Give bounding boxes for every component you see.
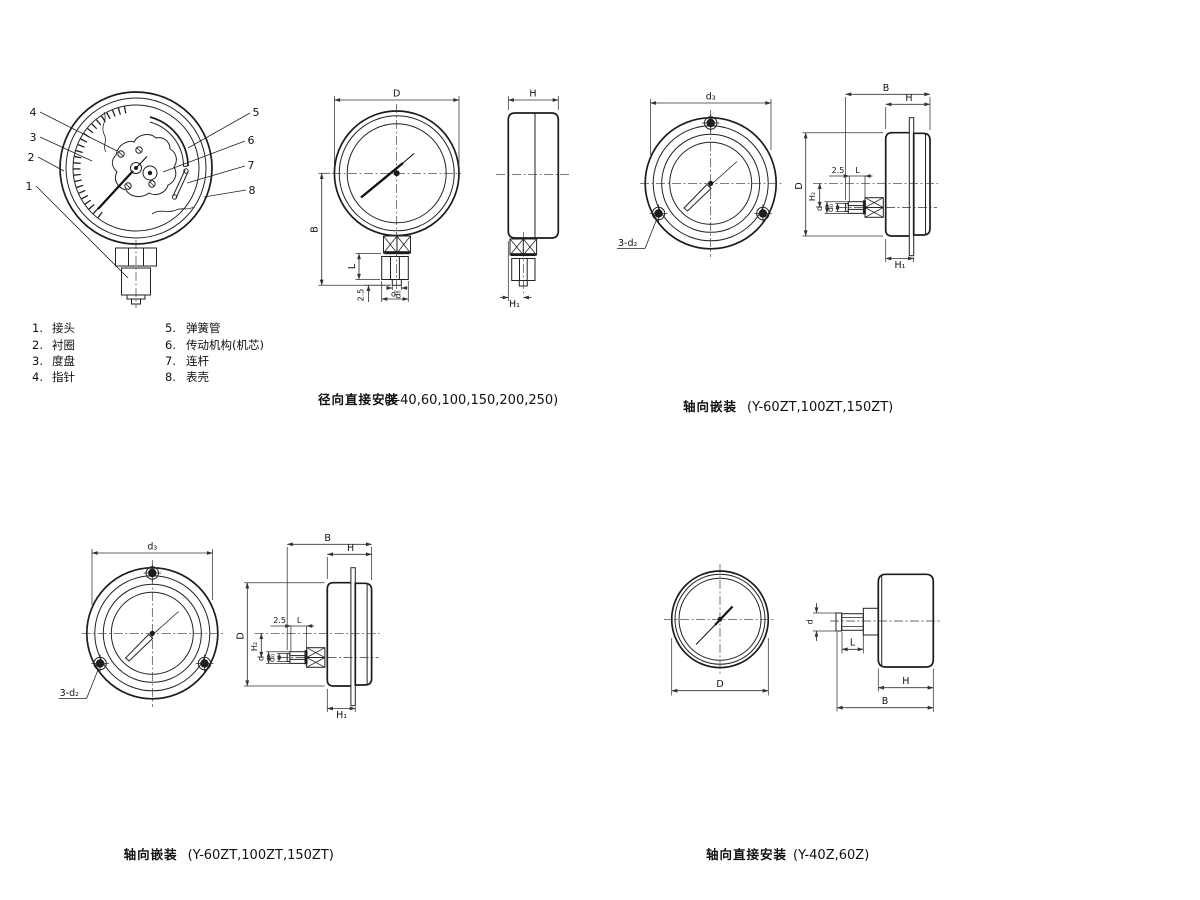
dim-label-H: H [905, 93, 912, 104]
legend-item-label: 弹簧管 [186, 321, 221, 335]
pointer-needle [715, 607, 733, 626]
dim-label-H1: H₁ [336, 710, 347, 721]
gasket [511, 253, 536, 256]
case-side-profile [327, 583, 351, 686]
callout-5: 5 [253, 106, 260, 119]
radial-direct-mount-figure: D B L 2.5 d₀ d [309, 89, 570, 409]
dim-label-2.5: 2.5 [273, 616, 286, 625]
bezel-profile [914, 133, 930, 235]
dim-label-L: L [347, 263, 358, 269]
dim-label-D: D [794, 182, 805, 189]
pointer-hub [394, 170, 400, 176]
cutaway-break-line [152, 207, 193, 214]
caption-models-axial-direct: (Y-40Z,60Z) [793, 848, 869, 863]
dim-label-L: L [850, 638, 856, 649]
mounting-hole [650, 205, 668, 223]
pressure-gauge-drawing: 4 3 2 1 5 6 7 8 1. 接头 2. 衬圈 3. 度盘 4. 指针 … [0, 0, 1200, 900]
pointer-hub [708, 181, 713, 186]
pointer-needle [126, 635, 153, 662]
callout-leader [204, 190, 246, 197]
bezel-profile [355, 583, 371, 685]
dim-label-d0: d₀ [268, 654, 277, 662]
dim-label-holes: 3-d₂ [618, 238, 638, 249]
pointer-needle [684, 185, 711, 212]
dim-label-d: d [391, 290, 396, 299]
dim-label-L: L [297, 616, 302, 625]
dim-label-B: B [882, 696, 889, 707]
dim-label-d: d [257, 656, 266, 661]
scanned-diagram-page: 4 3 2 1 5 6 7 8 1. 接头 2. 衬圈 3. 度盘 4. 指针 … [0, 0, 1200, 900]
dim-label-D: D [393, 89, 400, 100]
legend-item-num: 3. [32, 354, 43, 368]
dim-label-H2: H₂ [250, 642, 259, 651]
dim-label-d3: d₃ [706, 92, 716, 103]
hex-nut [382, 257, 409, 280]
caption-title-axial-embedded: 轴向嵌装 [683, 399, 737, 414]
dim-label-H2: H₂ [808, 192, 817, 201]
dim-label-H: H [347, 543, 354, 554]
dim-label-H1: H₁ [895, 260, 906, 271]
pointer-tail [696, 625, 715, 645]
case-side-profile [878, 574, 933, 667]
caption-models-axial-embedded: (Y-60ZT,100ZT,150ZT) [747, 400, 893, 415]
legend-item-num: 5. [165, 321, 176, 335]
movement-plate [112, 135, 176, 197]
callout-8: 8 [249, 184, 256, 197]
pointer-tail [403, 154, 414, 164]
axial-embedded-mount-figure-bottom: d₃ 3-d₂ B H D 2.5 [59, 533, 380, 863]
case-side-profile [508, 113, 558, 238]
dim-label-2.5: 2.5 [832, 166, 845, 175]
parts-legend: 1. 接头 2. 衬圈 3. 度盘 4. 指针 5. 弹簧管 6. 传动机构(机… [32, 321, 264, 384]
legend-item-label: 连杆 [186, 354, 209, 368]
axial-direct-mount-figure: D d L H B 轴向直接安装 (Y-40Z,60Z) [664, 564, 940, 863]
mounting-hole [91, 655, 109, 673]
callout-leader [645, 219, 657, 249]
stem-neck [863, 608, 878, 635]
dim-label-H: H [902, 676, 909, 687]
dim-label-2.5: 2.5 [357, 289, 366, 302]
callout-7: 7 [248, 159, 255, 172]
caption-models-axial-embedded: (Y-60ZT,100ZT,150ZT) [188, 848, 334, 863]
legend-item-label: 度盘 [52, 354, 75, 368]
legend-item-num: 4. [32, 370, 43, 384]
case-side-profile [886, 133, 910, 236]
caption-models-radial: (Y-40,60,100,150,200,250) [384, 393, 558, 408]
cutaway-figure: 4 3 2 1 5 6 7 8 [26, 92, 260, 308]
dim-label-d: d [815, 206, 824, 211]
axial-embedded-mount-figure-top: d₃ 3-d₂ B H D [617, 83, 938, 415]
pointer-hub [718, 617, 723, 622]
thread-tip [836, 613, 842, 631]
dim-label-H: H [529, 89, 536, 100]
legend-item-num: 6. [165, 338, 176, 352]
pointer-hub [150, 631, 155, 636]
legend-item-num: 2. [32, 338, 43, 352]
callout-leader [187, 166, 245, 183]
dim-label-H1: H₁ [509, 299, 520, 310]
legend-item-label: 表壳 [186, 370, 209, 384]
callout-4: 4 [30, 106, 37, 119]
mounting-hole [196, 655, 214, 673]
dim-label-B: B [309, 226, 320, 233]
legend-item-label: 接头 [52, 321, 75, 335]
dim-label-d0: d₀ [826, 204, 835, 212]
callout-6: 6 [248, 134, 255, 147]
legend-item-label: 传动机构(机芯) [186, 338, 264, 352]
dim-label-D: D [716, 679, 723, 690]
dim-label-B: B [883, 83, 890, 94]
callout-leader [87, 669, 99, 699]
legend-item-num: 7. [165, 354, 176, 368]
callout-2: 2 [28, 151, 35, 164]
dim-label-holes: 3-d₂ [60, 688, 80, 699]
dim-label-D: D [236, 632, 247, 639]
mounting-hole [144, 564, 162, 582]
legend-item-label: 指针 [52, 370, 75, 384]
legend-item-label: 衬圈 [52, 338, 75, 352]
dim-label-L: L [855, 166, 860, 175]
dim-label-B: B [324, 533, 331, 544]
stem-shaft [842, 614, 864, 631]
caption-title-axial-direct: 轴向直接安装 [706, 847, 787, 862]
callout-1: 1 [26, 180, 33, 193]
mounting-hole [754, 205, 772, 223]
dim-label-d: d [806, 619, 815, 624]
dim-label-d3: d₃ [147, 542, 157, 553]
mounting-hole [702, 114, 720, 132]
callout-3: 3 [30, 131, 37, 144]
caption-title-axial-embedded: 轴向嵌装 [124, 847, 178, 862]
legend-item-num: 8. [165, 370, 176, 384]
legend-item-num: 1. [32, 321, 43, 335]
